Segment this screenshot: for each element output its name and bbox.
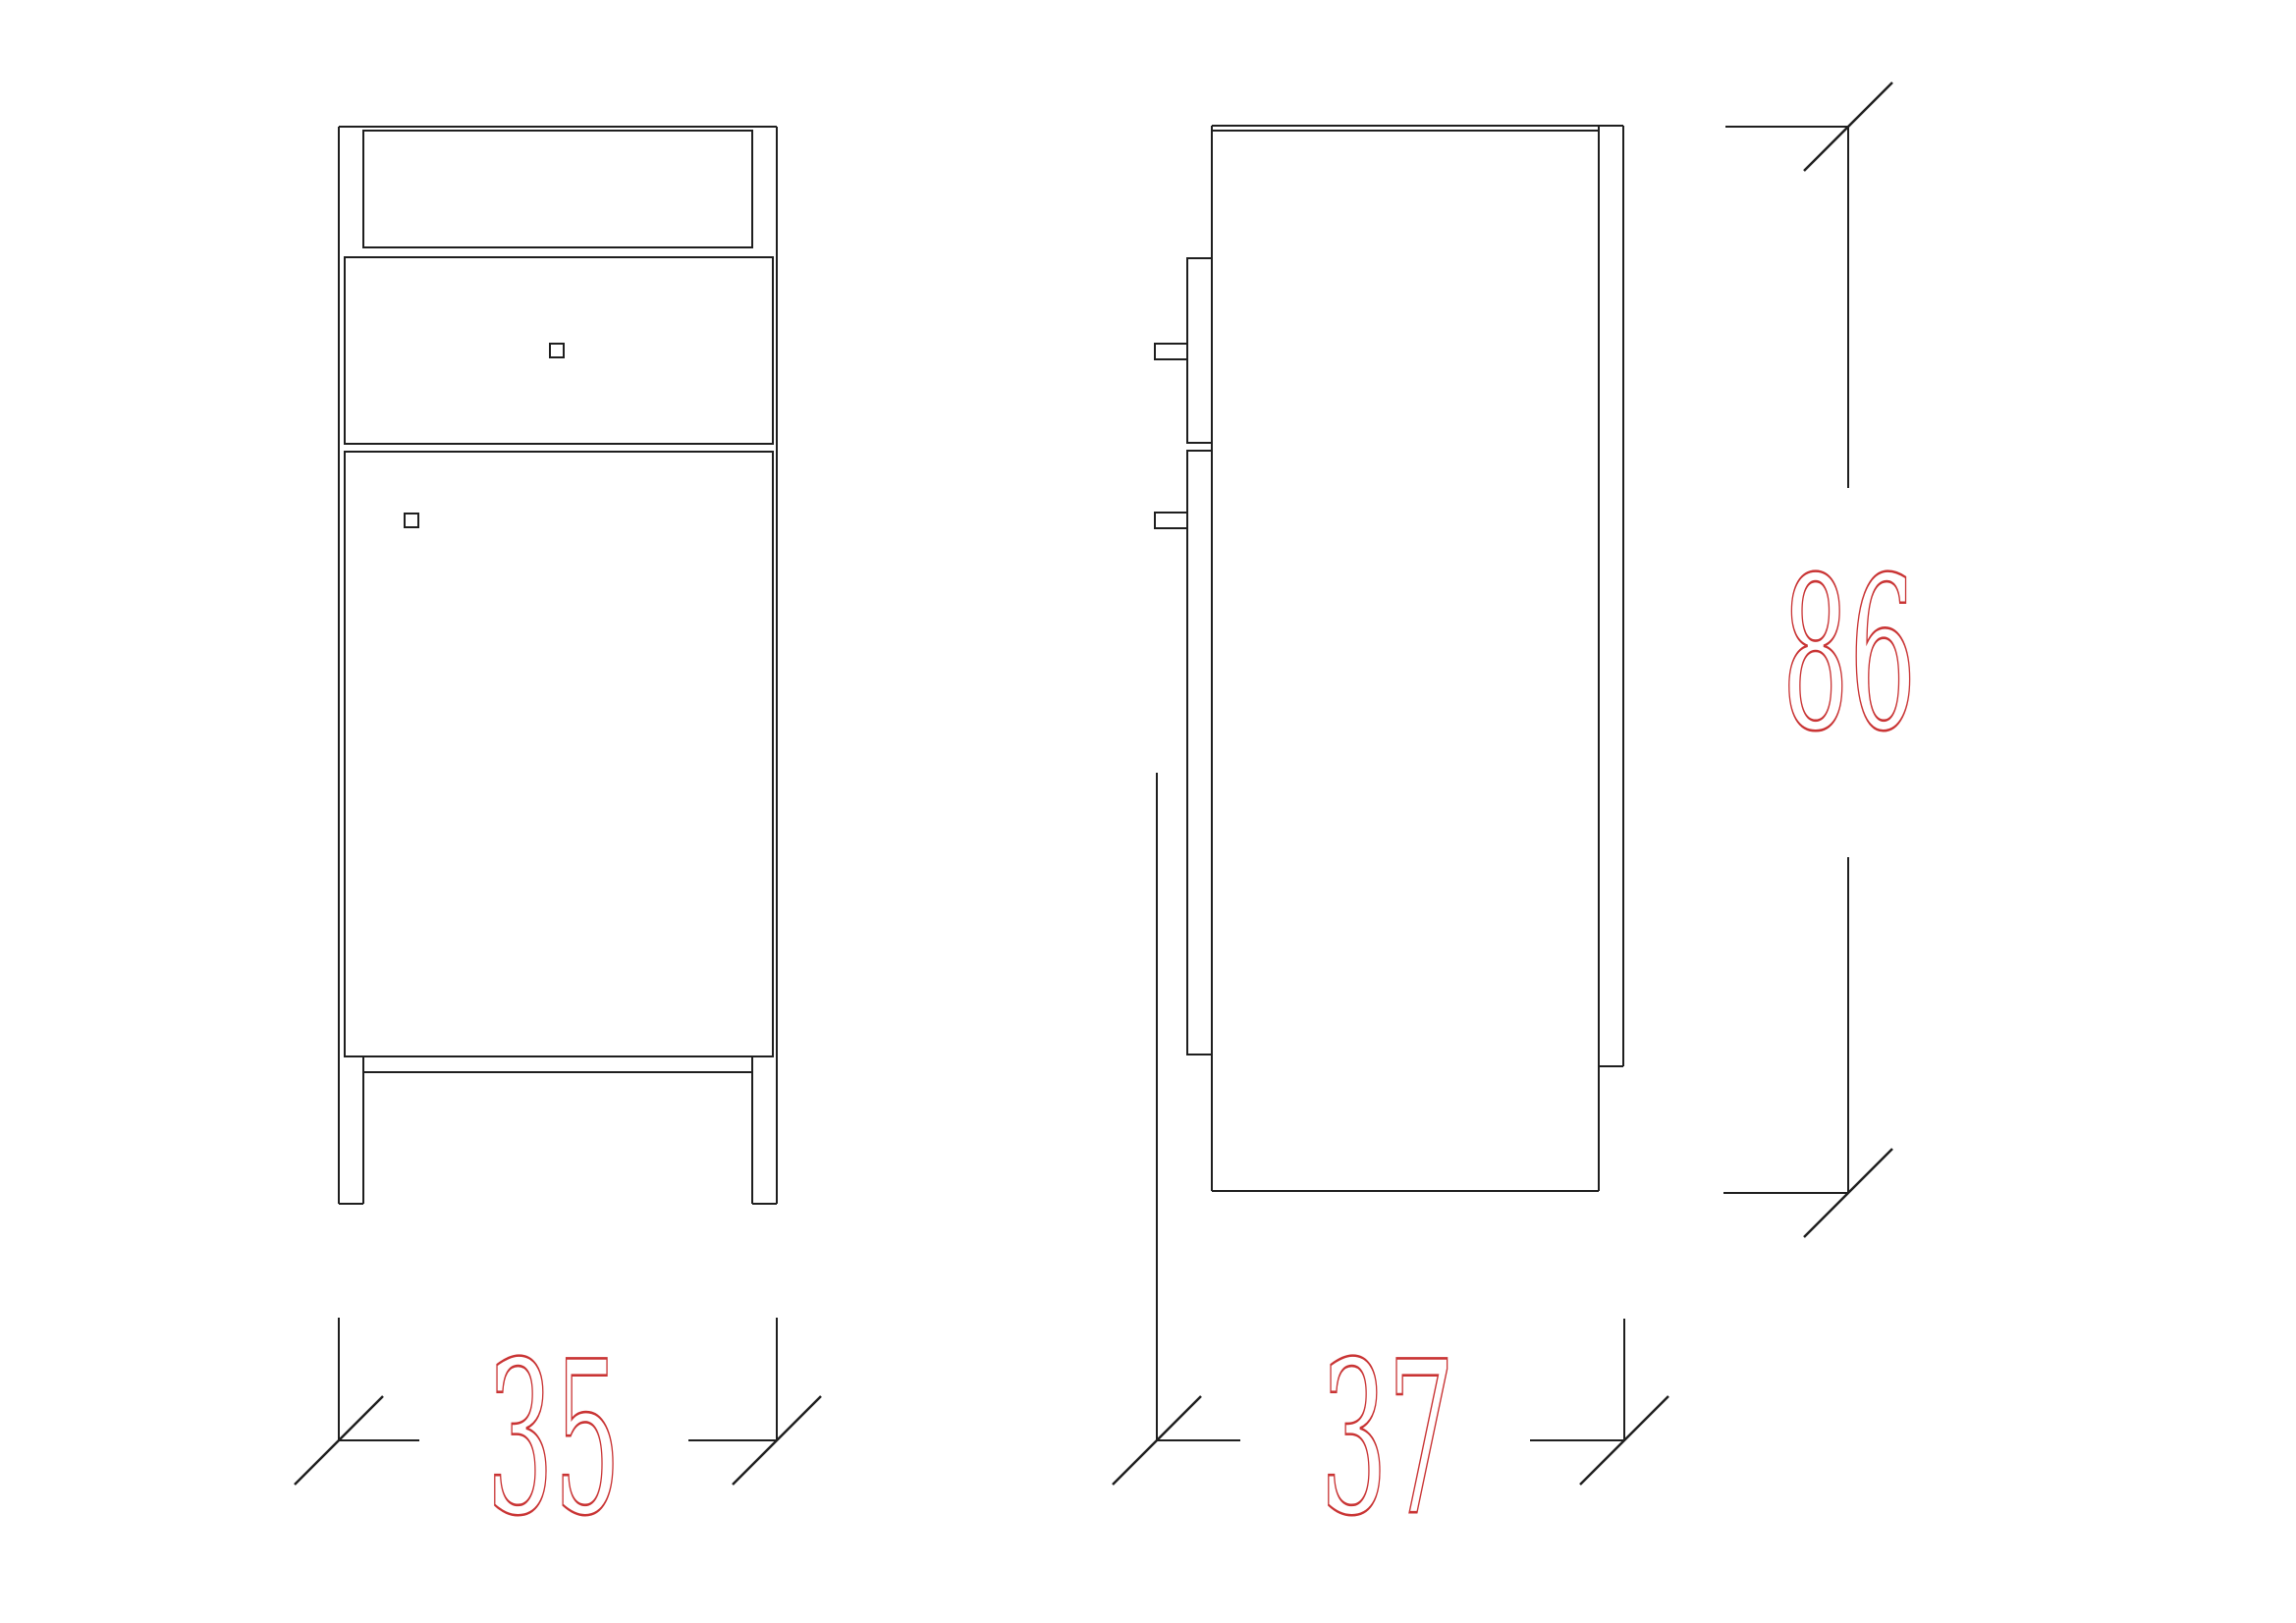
drawer-knob-side	[1155, 344, 1187, 359]
dimension-label-side-depth: 37	[1321, 1333, 1455, 1544]
door-front	[345, 452, 773, 1056]
dimension-label-front-width: 35	[487, 1333, 622, 1544]
drawing-sheet: 35 37 86	[0, 0, 2296, 1623]
door-handle	[405, 514, 418, 527]
door-front-side	[1187, 451, 1212, 1055]
top-band-recessed-panel	[363, 131, 752, 247]
drawer-handle	[550, 344, 564, 357]
dimension-label-height: 86	[1782, 549, 1917, 760]
drawing-svg	[0, 0, 2296, 1623]
drawer-front-side	[1187, 258, 1212, 443]
front-view	[339, 127, 777, 1204]
drawer-front	[345, 257, 773, 444]
side-view	[1155, 126, 1623, 1191]
door-knob-side	[1155, 513, 1187, 528]
